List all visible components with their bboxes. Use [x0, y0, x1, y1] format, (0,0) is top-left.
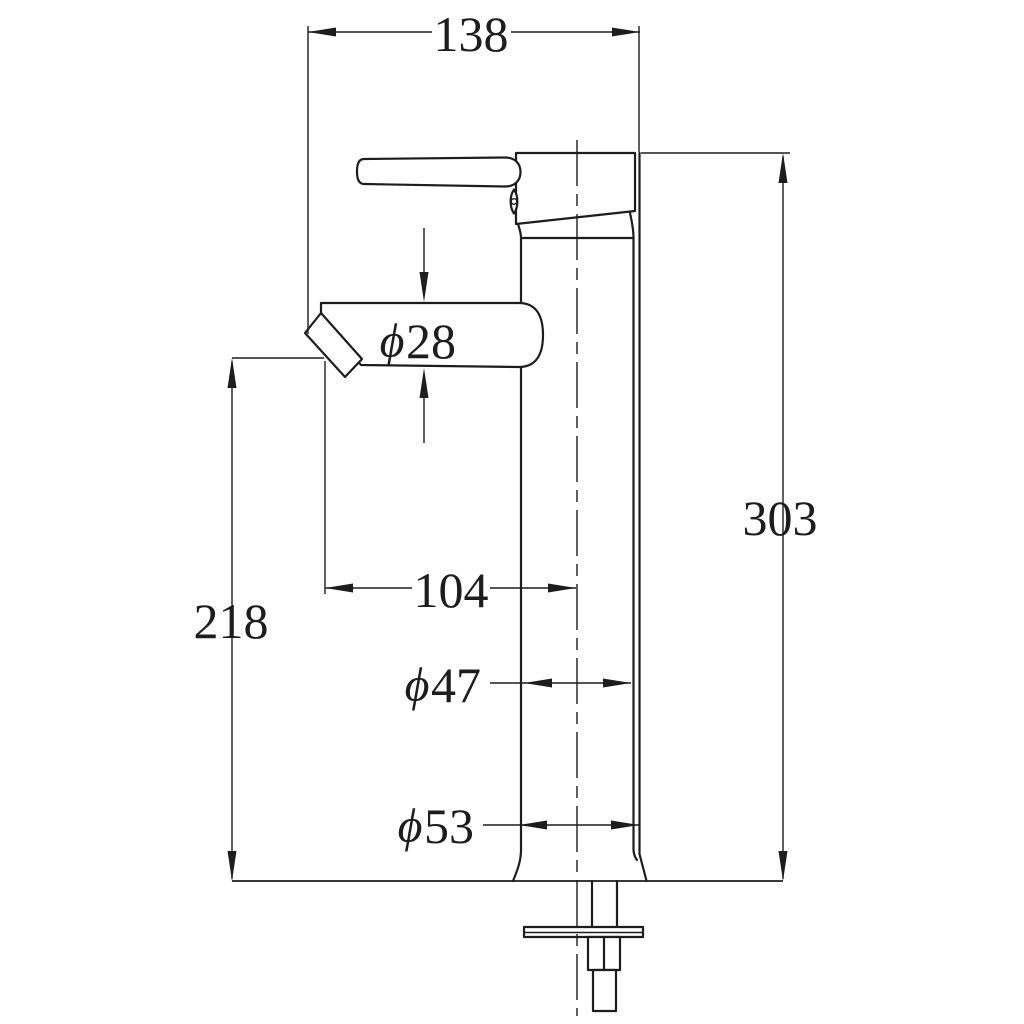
faucet-head	[516, 153, 635, 224]
dim-spout-outlet-height: 218	[194, 358, 325, 881]
mounting-shank	[592, 881, 617, 927]
dim-label-spout-outlet-height: 218	[194, 593, 269, 649]
faucet-body-outer-right-edge	[640, 153, 647, 881]
dim-spout-tube-diameter: ϕ 28	[380, 228, 456, 443]
dim-label-base-diameter: 53	[424, 798, 474, 854]
diameter-symbol: ϕ	[405, 659, 430, 712]
faucet-neck-right-edge	[630, 213, 634, 238]
dim-spout-reach: 104	[325, 361, 576, 618]
dim-label-spout-tube-diameter: 28	[406, 313, 456, 369]
threaded-rod	[593, 970, 616, 1011]
dim-overall-height: 303	[641, 153, 818, 881]
faucet-technical-drawing: 138 303 218 104 ϕ 28 ϕ	[0, 0, 1024, 1024]
diameter-symbol: ϕ	[398, 800, 423, 853]
mounting-hardware	[524, 881, 643, 1011]
dim-base-diameter: ϕ 53	[398, 798, 639, 854]
faucet-body-right-edge	[634, 238, 638, 860]
dim-label-body-diameter: 47	[431, 657, 481, 713]
dim-body-diameter: ϕ 47	[405, 657, 631, 713]
faucet-neck-left-edge	[518, 224, 521, 238]
faucet-outline	[305, 153, 647, 881]
dim-label-spout-reach: 104	[414, 562, 489, 618]
dim-label-overall-height: 303	[743, 490, 818, 546]
faucet-handle-lever	[357, 158, 521, 187]
technical-drawing-page: 138 303 218 104 ϕ 28 ϕ	[0, 0, 1024, 1024]
diameter-symbol: ϕ	[380, 315, 405, 368]
dim-label-spout-projection: 138	[434, 6, 509, 62]
